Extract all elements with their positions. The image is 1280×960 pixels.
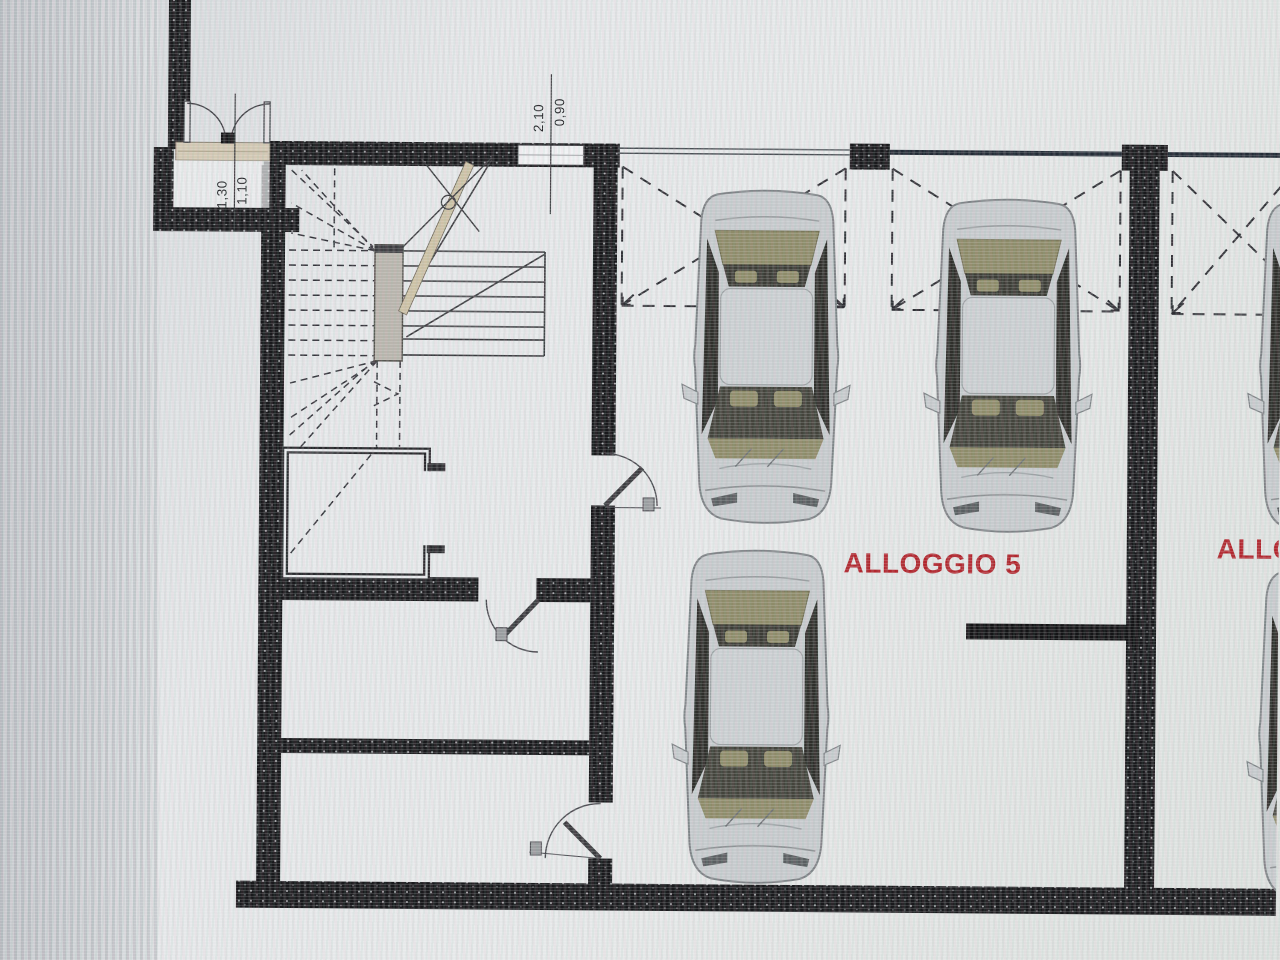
elevator-door-gap bbox=[419, 471, 436, 545]
dim-top-width: 0,90 bbox=[552, 98, 567, 126]
door-meeting-block bbox=[221, 133, 235, 144]
car-icon bbox=[681, 190, 852, 523]
door-cellar-1 bbox=[486, 600, 538, 652]
wall-cellar-divider bbox=[279, 738, 589, 755]
label-alloggio-right-clipped: ALLO bbox=[1217, 533, 1280, 565]
label-alloggio-5: ALLOGGIO 5 bbox=[843, 547, 1021, 579]
wall-stub-end-tick bbox=[1132, 615, 1140, 651]
car-icon-partial bbox=[1246, 568, 1280, 901]
front-beam-left bbox=[890, 150, 1122, 157]
pillar-2 bbox=[1122, 145, 1168, 171]
floor-plan-photo: 0,90 2,10 1,10 1,30 bbox=[0, 0, 1280, 960]
entry-double-door bbox=[184, 101, 270, 144]
wall-garage-divider bbox=[1124, 168, 1160, 890]
garage-front-line bbox=[618, 141, 1280, 173]
car-icon-partial bbox=[1247, 200, 1280, 533]
door-cellar-2 bbox=[529, 803, 600, 859]
door-corridor-to-garage bbox=[605, 454, 661, 511]
wall-stub-alloggio5 bbox=[966, 623, 1140, 640]
staircase bbox=[287, 156, 546, 555]
dim-entry-height: 1,30 bbox=[214, 180, 229, 208]
elevator-shaft bbox=[284, 450, 445, 577]
garage-opening-double-line bbox=[618, 148, 850, 155]
dim-top-height: 2,10 bbox=[531, 104, 546, 132]
wall-left-main bbox=[256, 165, 286, 905]
wall-interior-vertical-middle bbox=[589, 505, 615, 802]
wall-bottom bbox=[236, 881, 1276, 916]
pillar-1 bbox=[850, 143, 890, 169]
front-beam-right bbox=[1168, 152, 1280, 158]
wall-corridor-right bbox=[536, 578, 590, 602]
cars bbox=[671, 190, 1280, 901]
wall-interior-vertical-upper bbox=[591, 150, 617, 455]
car-icon bbox=[923, 199, 1094, 532]
dim-entry-width: 1,10 bbox=[234, 176, 249, 204]
floor-plan: 0,90 2,10 1,10 1,30 bbox=[0, 0, 1280, 960]
wall-interior-vertical-lower bbox=[588, 858, 612, 885]
car-icon bbox=[671, 550, 842, 883]
stair-spine-wall bbox=[374, 245, 403, 361]
